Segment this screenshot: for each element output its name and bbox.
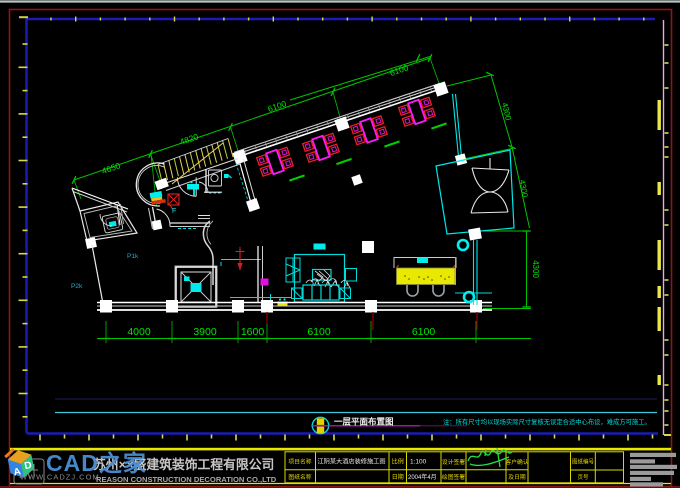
svg-text:2004年4月: 2004年4月: [408, 473, 437, 481]
svg-text:P1k: P1k: [127, 253, 139, 260]
svg-text:F: F: [172, 208, 176, 215]
svg-text:客户确认: 客户确认: [505, 458, 528, 466]
svg-text:3900: 3900: [193, 326, 217, 338]
svg-text:图纸名称: 图纸名称: [288, 473, 311, 481]
svg-text:1:100: 1:100: [410, 459, 427, 466]
svg-text:项目名称: 项目名称: [288, 458, 311, 466]
svg-text:比例: 比例: [392, 458, 404, 466]
svg-text:REASON CONSTRUCTION DECORATION: REASON CONSTRUCTION DECORATION CO.,LTD: [96, 475, 277, 484]
svg-text:图纸编号: 图纸编号: [572, 458, 595, 466]
svg-text:设计签署: 设计签署: [442, 458, 465, 466]
svg-text:4300: 4300: [531, 260, 540, 278]
svg-text:一层平面布置图: 一层平面布置图: [334, 417, 394, 427]
svg-text:江阴某大酒店装修施工图: 江阴某大酒店装修施工图: [317, 458, 385, 466]
svg-text:4000: 4000: [127, 326, 151, 338]
svg-text:页号: 页号: [577, 474, 589, 481]
svg-text:P2k: P2k: [71, 283, 83, 290]
svg-text:及日期: 及日期: [508, 474, 526, 481]
svg-text:WWW.CADZJ.COM: WWW.CADZJ.COM: [20, 473, 100, 482]
svg-text:日期: 日期: [392, 473, 404, 481]
svg-text:6100: 6100: [307, 326, 331, 338]
svg-text:注：所有尺寸均以现场实际尺寸复核无误定合适中心布设，难成方可: 注：所有尺寸均以现场实际尺寸复核无误定合适中心布设，难成方可施工。: [443, 417, 651, 426]
svg-text:1600: 1600: [241, 326, 265, 338]
svg-text:6100: 6100: [412, 326, 436, 338]
svg-text:绘图签署: 绘图签署: [442, 473, 465, 481]
